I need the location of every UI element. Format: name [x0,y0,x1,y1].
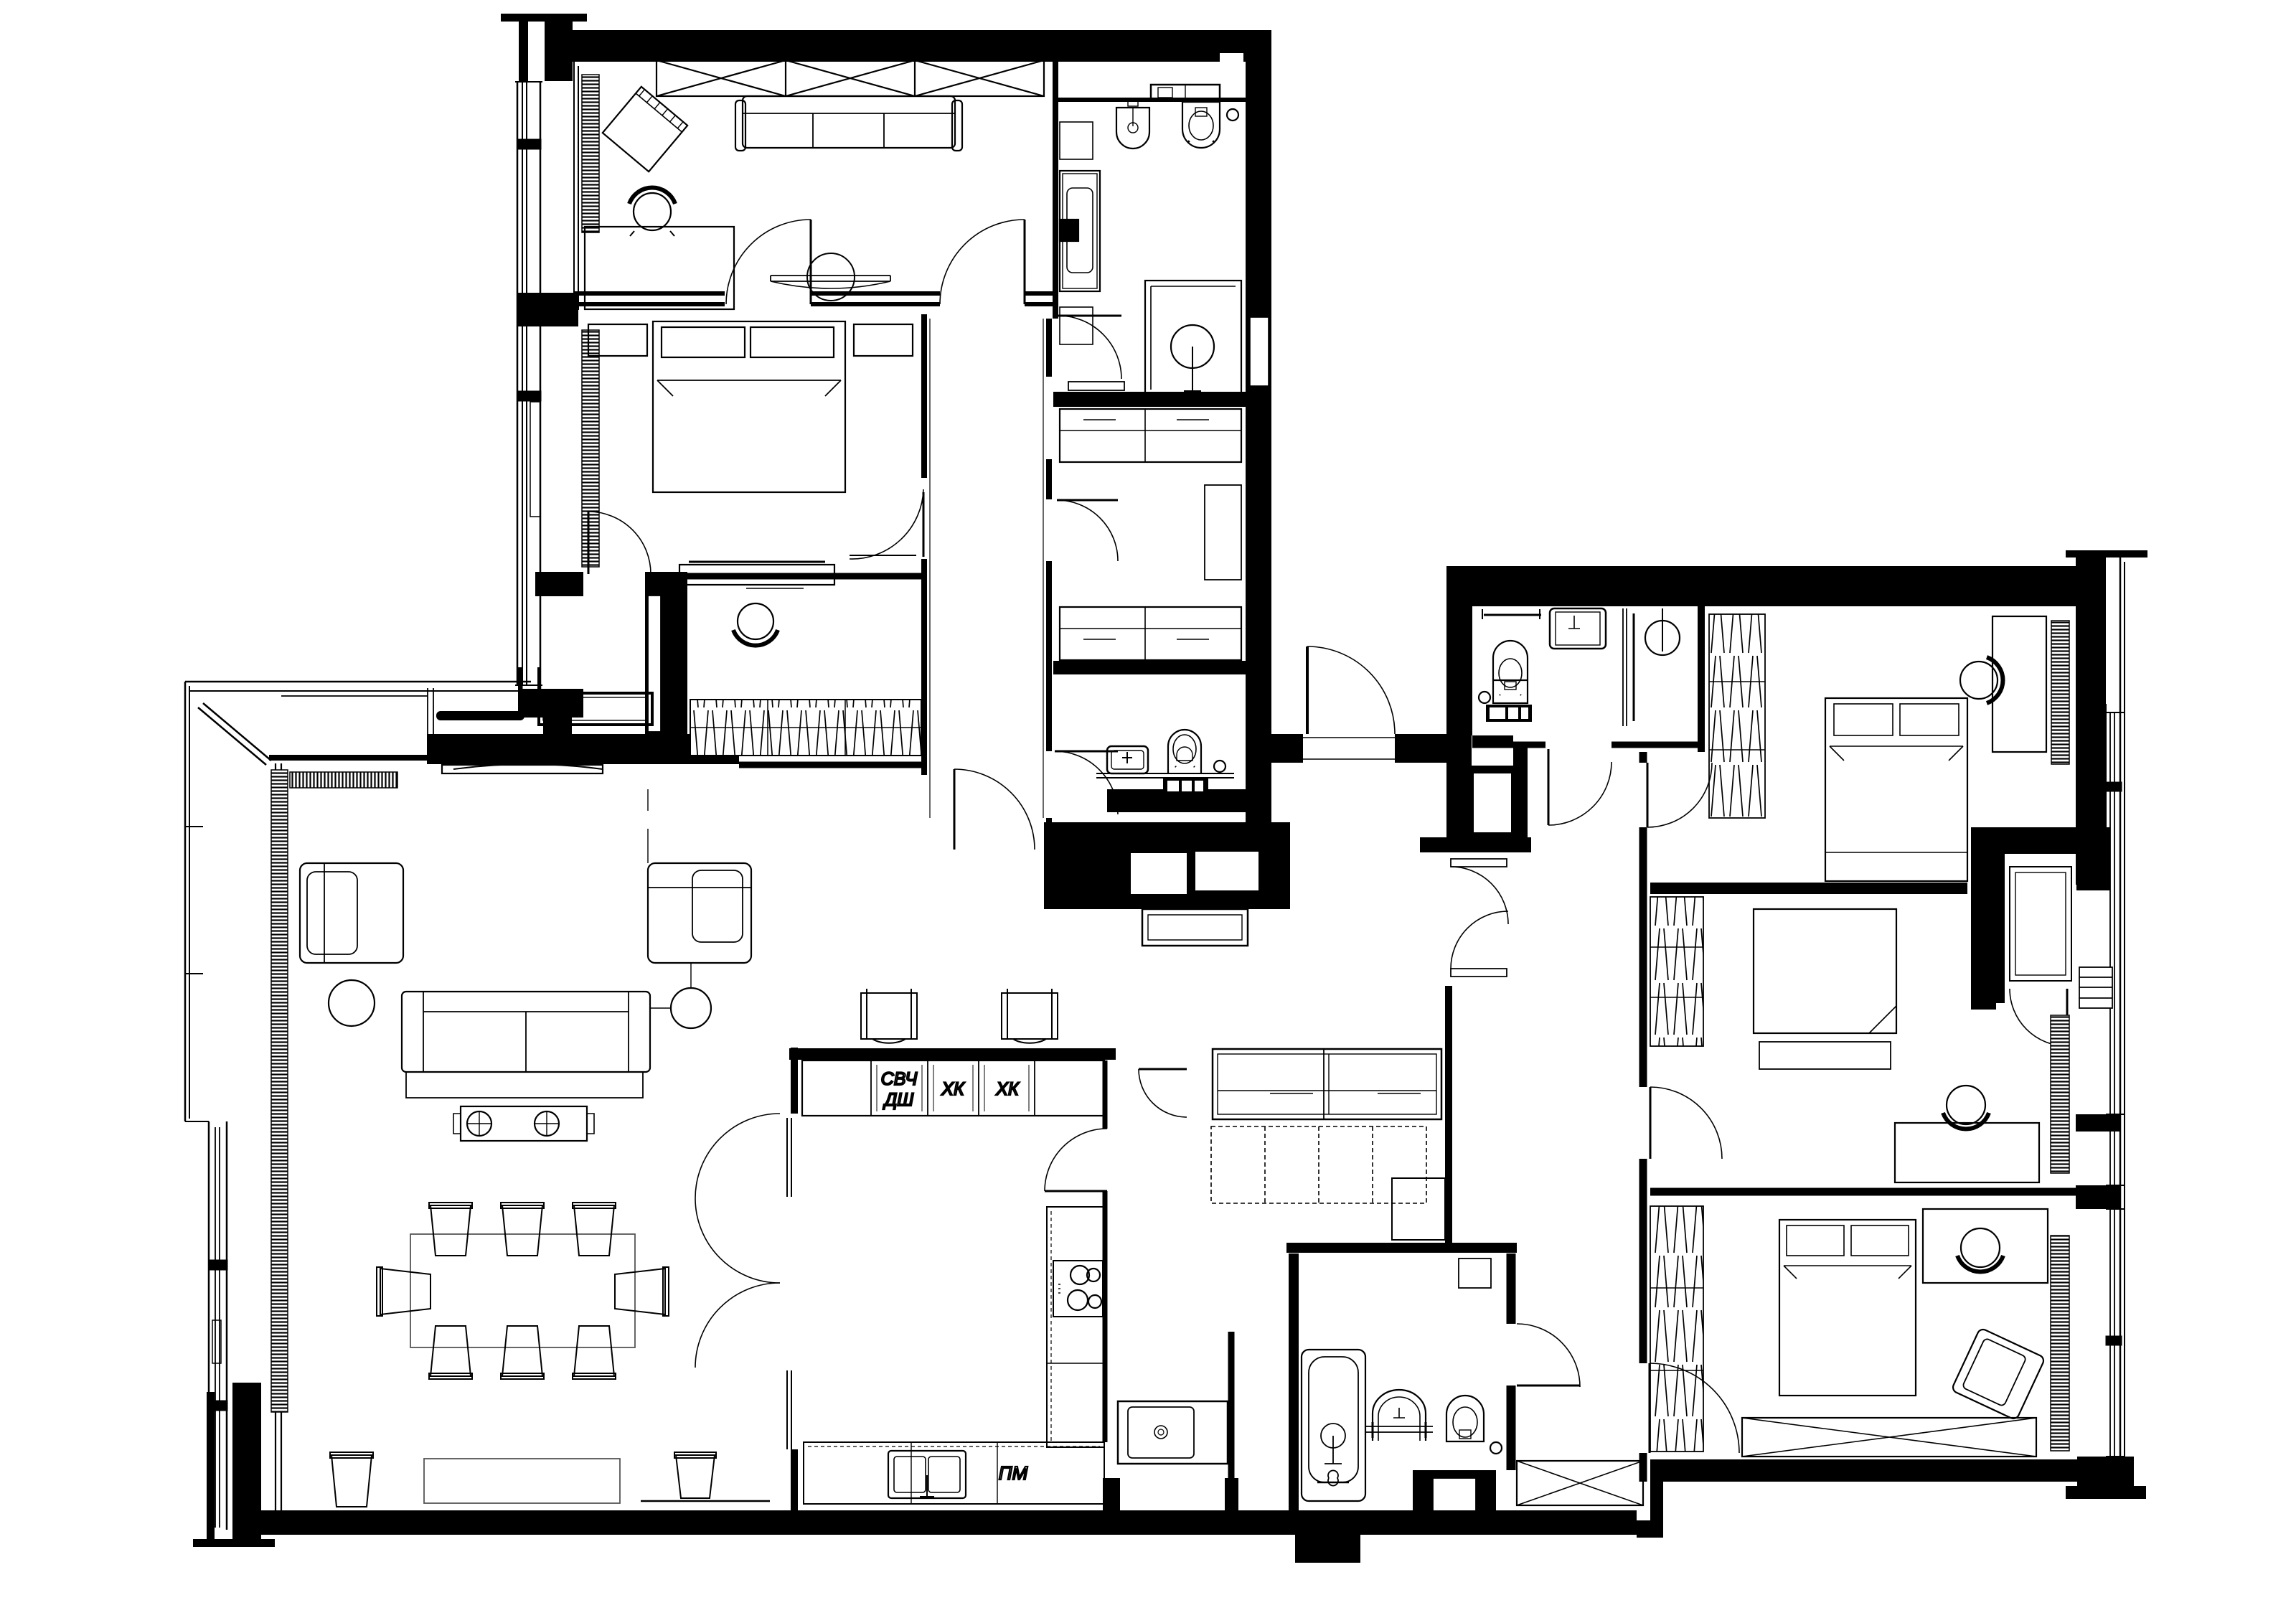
svg-text:ДШ: ДШ [883,1090,915,1110]
svg-text:ПМ: ПМ [999,1462,1028,1484]
svg-text:ХК: ХК [995,1079,1020,1099]
svg-text:ХК: ХК [941,1079,965,1099]
svg-text:СВЧ: СВЧ [881,1069,918,1089]
